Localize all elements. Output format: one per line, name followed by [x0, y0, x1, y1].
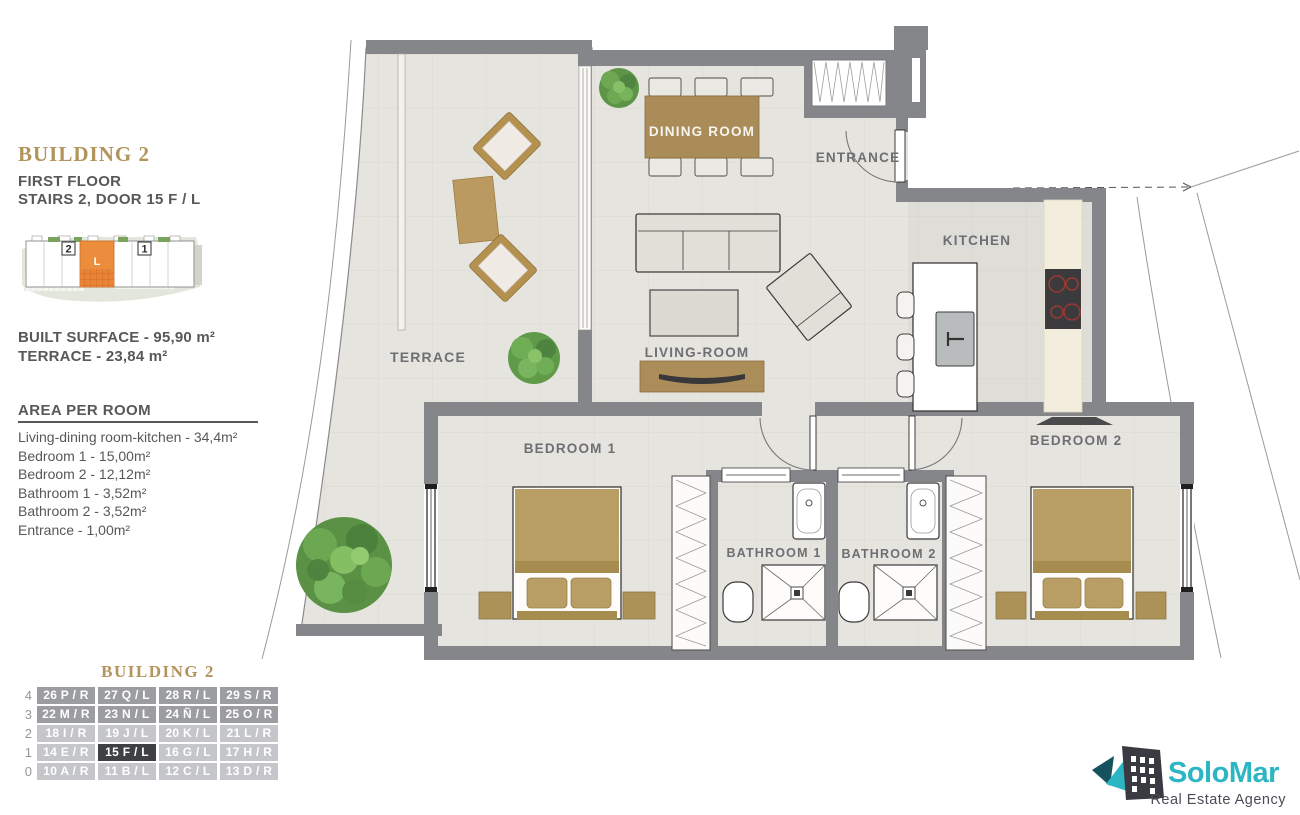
unit-cell: 25 O / R	[220, 706, 278, 723]
agency-tagline: Real Estate Agency	[1150, 792, 1286, 808]
coffee-table	[650, 290, 738, 336]
wardrobe-1	[672, 476, 710, 650]
unit-cell: 22 M / R	[37, 706, 95, 723]
area-per-room-list: Living-dining room-kitchen - 34,4m² Bedr…	[18, 428, 274, 539]
entrance-label: ENTRANCE	[816, 150, 901, 165]
inset-unit-letter: L	[94, 256, 101, 268]
terrace-label: TERRACE	[390, 349, 466, 365]
unit-cell: 28 R / L	[159, 687, 217, 704]
building-title: BUILDING 2	[18, 142, 274, 167]
bathroom1-sliding-door	[722, 468, 790, 482]
unit-cell: 24 Ñ / L	[159, 706, 217, 723]
area-item: Bedroom 1 - 15,00m²	[18, 447, 274, 466]
floor-number: 0	[16, 763, 32, 780]
unit-cell: 10 A / R	[37, 763, 95, 780]
living-room-label: LIVING-ROOM	[645, 345, 750, 360]
built-surface: BUILT SURFACE - 95,90 m²	[18, 328, 274, 347]
terrace-surface: TERRACE - 23,84 m²	[18, 347, 274, 366]
units-row-floor-0: 0 10 A / R 11 B / L 12 C / L 13 D / R	[16, 763, 286, 780]
agency-name: SoloMar	[1168, 757, 1279, 789]
unit-cell-selected: 15 F / L	[98, 744, 156, 761]
bedroom1-window	[424, 484, 438, 592]
bathroom2-shower	[874, 565, 937, 620]
area-item: Bedroom 2 - 12,12m²	[18, 465, 274, 484]
sofa	[636, 214, 780, 272]
unit-cell: 13 D / R	[220, 763, 278, 780]
terrace-sliding-glass	[579, 66, 591, 330]
area-per-room-heading: AREA PER ROOM	[18, 402, 258, 423]
unit-cell: 26 P / R	[37, 687, 95, 704]
unit-cell: 11 B / L	[98, 763, 156, 780]
tv-console	[640, 361, 764, 392]
unit-cell: 27 Q / L	[98, 687, 156, 704]
unit-cell: 18 I / R	[37, 725, 95, 742]
kitchen-island	[913, 263, 977, 411]
terrace-table	[453, 176, 499, 244]
unit-cell: 29 S / R	[220, 687, 278, 704]
area-item: Bathroom 1 - 3,52m²	[18, 484, 274, 503]
bedroom2-window	[1180, 484, 1194, 592]
large-tree	[296, 517, 392, 613]
floorplan-sheet: TERRACE DINING ROOM ENTRANCE KITCHEN LIV…	[0, 0, 1300, 815]
entrance-closet	[812, 60, 886, 106]
units-table: BUILDING 2 4 26 P / R 27 Q / L 28 R / L …	[16, 662, 286, 782]
unit-cell: 19 J / L	[98, 725, 156, 742]
info-panel: BUILDING 2 FIRST FLOOR STAIRS 2, DOOR 15…	[18, 142, 274, 539]
stairs-line: STAIRS 2, DOOR 15 F / L	[18, 191, 274, 209]
bathroom1-sink	[793, 483, 825, 539]
terrace-balustrade	[398, 54, 405, 330]
bathroom1-label: BATHROOM 1	[726, 546, 821, 560]
bathroom1-toilet	[723, 582, 753, 622]
kitchen-label: KITCHEN	[943, 233, 1011, 248]
unit-cell: 20 K / L	[159, 725, 217, 742]
bathroom2-sliding-door	[838, 468, 904, 482]
units-row-floor-3: 3 22 M / R 23 N / L 24 Ñ / L 25 O / R	[16, 706, 286, 723]
bathroom2-label: BATHROOM 2	[841, 547, 936, 561]
unit-cell: 23 N / L	[98, 706, 156, 723]
terrace-bush	[508, 332, 560, 384]
area-item: Entrance - 1,00m²	[18, 521, 274, 540]
building-location-inset: L 2 1	[18, 225, 204, 309]
inset-highlighted-unit: L	[80, 241, 114, 287]
floor-number: 2	[16, 725, 32, 742]
dining-room-label: DINING ROOM	[649, 124, 755, 139]
units-row-floor-1: 1 14 E / R 15 F / L 16 G / L 17 H / R	[16, 744, 286, 761]
floor-number: 1	[16, 744, 32, 761]
agency-logo: SoloMar Real Estate Agency	[1086, 740, 1298, 815]
area-item: Living-dining room-kitchen - 34,4m²	[18, 428, 274, 447]
unit-cell: 17 H / R	[220, 744, 278, 761]
floor-line: FIRST FLOOR	[18, 173, 274, 191]
units-row-floor-2: 2 18 I / R 19 J / L 20 K / L 21 L / R	[16, 725, 286, 742]
svg-text:2: 2	[65, 244, 71, 256]
stairwell-window	[912, 58, 920, 102]
bathroom2-toilet	[839, 582, 869, 622]
units-row-floor-4: 4 26 P / R 27 Q / L 28 R / L 29 S / R	[16, 687, 286, 704]
area-item: Bathroom 2 - 3,52m²	[18, 502, 274, 521]
units-table-title: BUILDING 2	[36, 662, 280, 682]
bathroom1-shower	[762, 565, 825, 620]
floor-number: 4	[16, 687, 32, 704]
plant-small	[599, 68, 639, 108]
wardrobe-2	[946, 476, 986, 650]
kitchen-stools	[897, 292, 914, 397]
bathroom2-sink	[907, 483, 939, 539]
unit-cell: 16 G / L	[159, 744, 217, 761]
bedroom2-label: BEDROOM 2	[1030, 433, 1123, 448]
unit-cell: 14 E / R	[37, 744, 95, 761]
unit-cell: 12 C / L	[159, 763, 217, 780]
unit-cell: 21 L / R	[220, 725, 278, 742]
floor-number: 3	[16, 706, 32, 723]
svg-text:1: 1	[141, 244, 147, 256]
bedroom1-label: BEDROOM 1	[524, 441, 617, 456]
kitchen-counter	[1044, 200, 1082, 412]
